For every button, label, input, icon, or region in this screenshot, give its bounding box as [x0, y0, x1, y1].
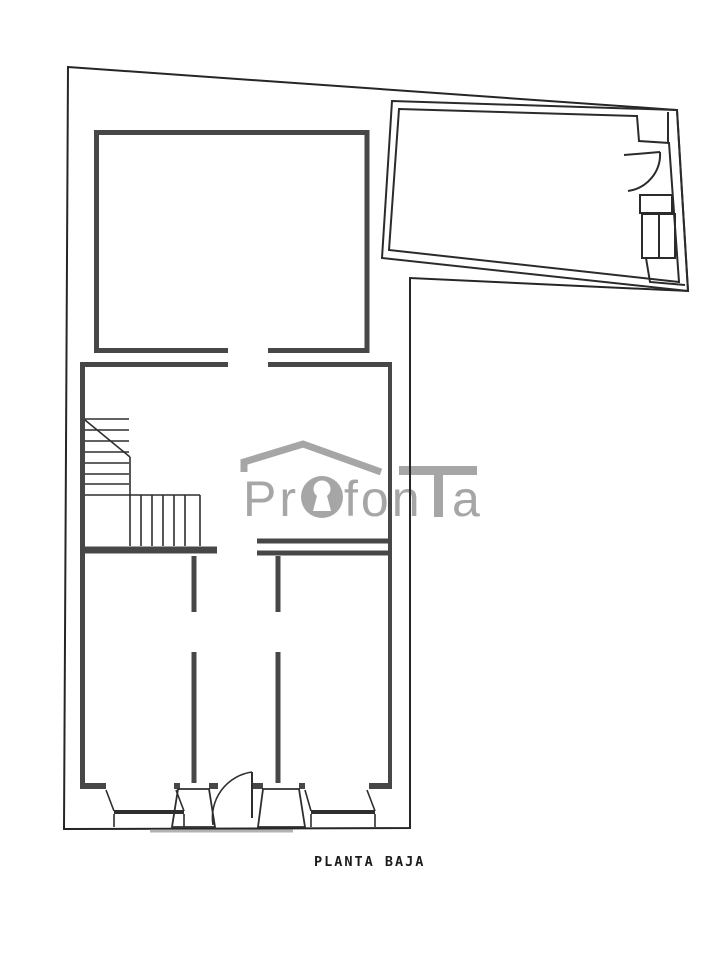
floorplan-page: Pr fon a: [0, 0, 718, 960]
entry-door-arc: [212, 772, 252, 825]
annex-window-2: [642, 214, 675, 258]
door-jamb-right: [258, 789, 305, 827]
annex-window-1: [640, 195, 672, 213]
watermark-text-pr: Pr: [243, 471, 299, 527]
roof-icon: [244, 444, 381, 472]
annex-inner-wall: [389, 109, 679, 282]
window-right-reveal: [305, 790, 375, 827]
watermark-text-a: a: [452, 471, 483, 527]
top-left-room-walls: [97, 133, 368, 351]
stair-treads-lower: [141, 495, 200, 546]
t-stem: [434, 468, 443, 517]
facade-openings: [106, 772, 375, 831]
annex-room: [382, 101, 688, 291]
floor-plan-drawing: Pr fon a: [0, 0, 718, 960]
hall-bottom-wall-right: [257, 541, 392, 553]
boundary-outline: [64, 67, 688, 829]
annex-door-arc: [628, 152, 660, 191]
room-divider-walls: [194, 556, 278, 783]
watermark-logo: Pr fon a: [243, 444, 483, 527]
plan-title: PLANTA BAJA: [314, 854, 425, 870]
stair-treads-upper: [85, 419, 200, 495]
annex-door-leaf: [624, 152, 660, 155]
property-boundary: [64, 67, 688, 829]
staircase: [85, 419, 200, 546]
